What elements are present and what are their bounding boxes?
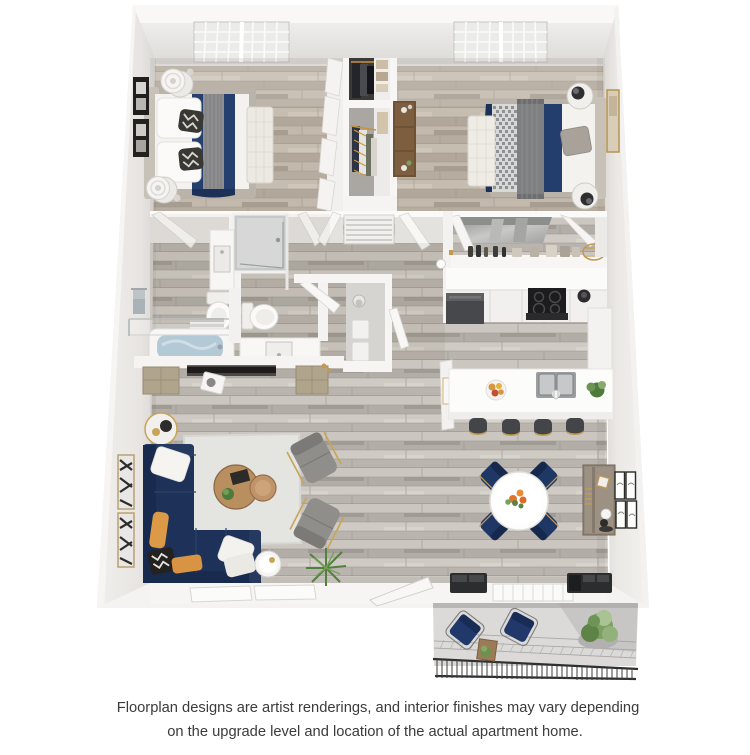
svg-text:on the upgrade level and locat: on the upgrade level and location of the… [167, 724, 583, 740]
svg-text:Floorplan designs are artist r: Floorplan designs are artist renderings,… [117, 700, 640, 716]
